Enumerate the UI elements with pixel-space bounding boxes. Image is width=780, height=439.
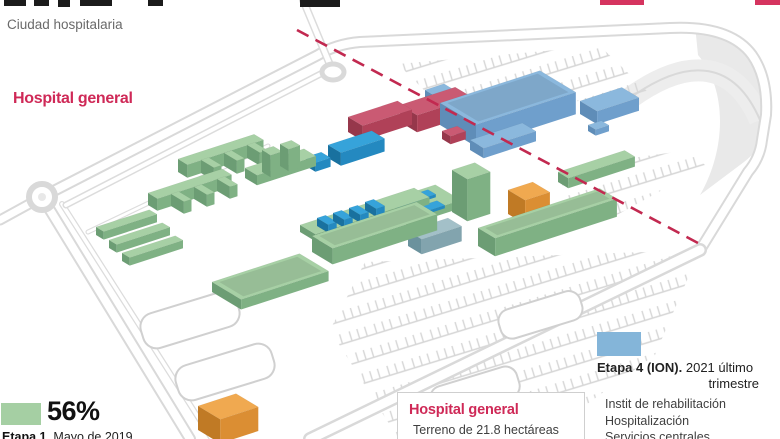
red-annex [442, 126, 466, 144]
infographic-ciudad-hospitalaria: Ciudad hospitalaria Hospital general 56%… [0, 0, 780, 439]
etapa4-small-annex [588, 121, 609, 136]
etapa1-caption: Etapa 1. Mayo de 2019 [0, 430, 133, 439]
info-box-title: Hospital general [409, 402, 584, 418]
etapa4-swatch [597, 332, 641, 356]
orange-building-south [198, 394, 258, 439]
etapa4-item: Instit de rehabilitación [605, 396, 777, 413]
kicker-ciudad-hospitalaria: Ciudad hospitalaria [7, 17, 123, 32]
label-hospital-general: Hospital general [13, 90, 133, 108]
green-tower-a [262, 146, 282, 177]
etapa1-stage-label: Etapa 1. [2, 430, 50, 439]
etapa4-stage-label: Etapa 4 (ION). [597, 360, 682, 375]
legend-etapa1: 56% Etapa 1. Mayo de 2019 [0, 396, 133, 439]
etapa1-stage-date: Mayo de 2019 [50, 430, 133, 439]
etapa4-item: Servicios centrales [605, 429, 777, 439]
etapa4-stage-date-2: trimestre [597, 376, 759, 392]
red-building-west [348, 101, 412, 141]
green-flat-courtyard [212, 254, 329, 310]
green-tower-b [280, 140, 300, 171]
green-comb-south-tooth [217, 177, 238, 199]
etapa4-items: Instit de rehabilitación Hospitalización… [597, 396, 777, 439]
etapa4-title: Etapa 4 (ION). 2021 último trimestre [597, 360, 759, 392]
etapa4-stage-date: 2021 último [682, 360, 753, 375]
blue-building-west [328, 131, 385, 166]
info-box-line: Terreno de 21.8 hectáreas [409, 423, 584, 437]
etapa1-percentage: 56% [47, 396, 100, 427]
etapa4-item: Hospitalización [605, 413, 777, 430]
hospital-general-info-box: Hospital general Terreno de 21.8 hectáre… [397, 392, 585, 439]
cropped-headline-fragments [4, 0, 780, 7]
etapa1-swatch [1, 403, 41, 425]
legend-etapa4: Etapa 4 (ION). 2021 último trimestre Ins… [597, 332, 777, 439]
green-tall-tower [452, 163, 490, 222]
